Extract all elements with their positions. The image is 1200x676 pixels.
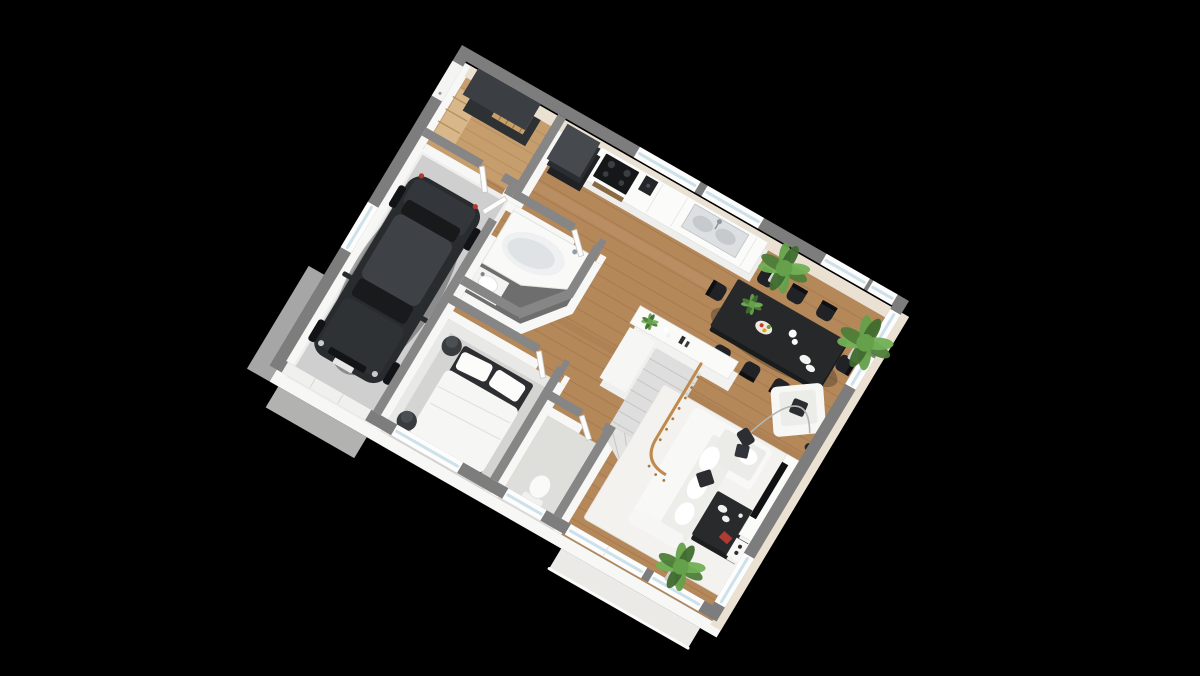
floor-plan-3d-render: [0, 0, 1200, 676]
floor-plan-stage: [0, 0, 1200, 676]
